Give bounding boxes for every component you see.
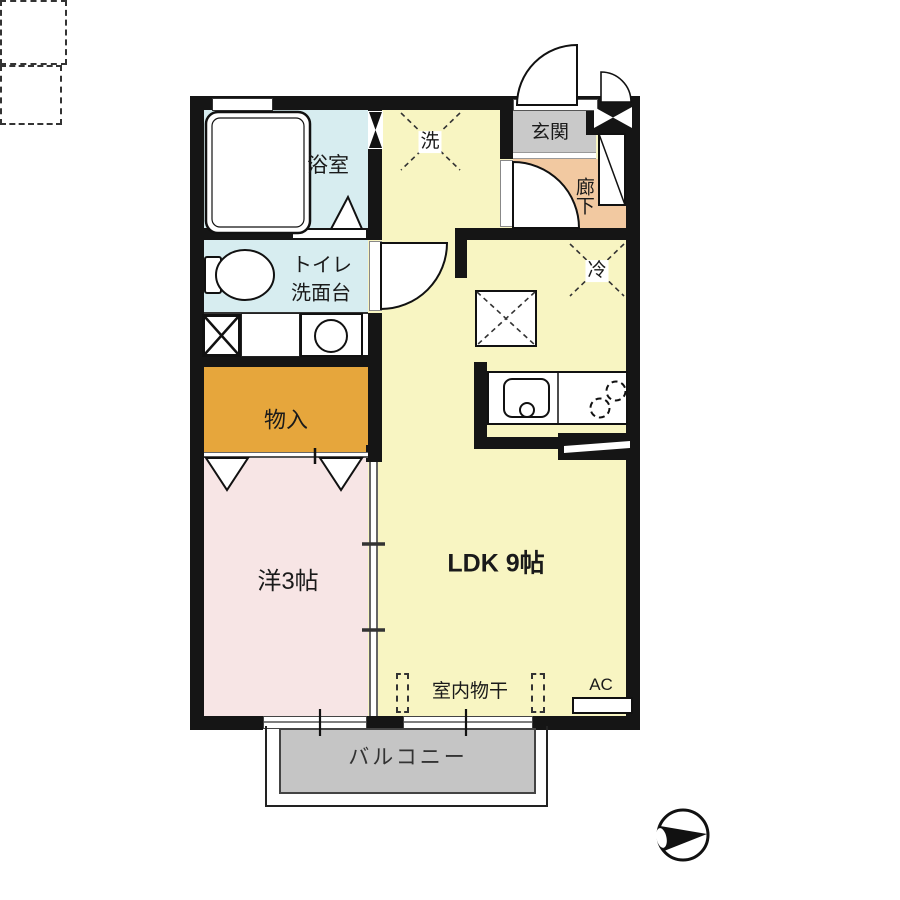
kitchen-counter-edge-v [474,362,487,449]
label-washer: 洗 [418,131,441,153]
wall-hall-ldk [455,228,640,240]
kitchen-cabinet [475,290,537,347]
shoe-cabinet [598,133,626,206]
refrigerator-space [0,65,62,125]
washstand-counter [241,313,300,357]
wall-stub-storage [366,445,382,462]
label-ac: AC [589,675,613,695]
wall-right [626,96,640,730]
washroom-door-leaf [369,241,382,311]
wall-wash-ldk [368,313,382,462]
entrance-step [513,152,596,159]
kitchen-vent-box [558,433,637,460]
wall-hall-stub [455,240,467,278]
label-ldk: LDK 9帖 [447,550,544,579]
bathroom-door-opening [293,230,366,238]
drying-pole-mark-right [531,673,545,713]
label-refrigerator: 冷 [585,260,608,282]
label-balcony: バルコニー [348,746,468,770]
label-entrance: 玄関 [531,122,569,144]
wall-window-marker [368,111,383,149]
label-hallway: 廊下 [572,177,594,215]
label-storage: 物入 [264,407,308,432]
north-arrow-icon [655,810,708,860]
ac-unit [572,697,633,714]
wall-left [190,96,204,730]
kitchen-counter-edge-h [474,437,558,449]
hallway-door-leaf [500,160,513,227]
label-western-room: 洋3帖 [257,568,318,596]
label-washstand: 洗面台 [291,283,351,306]
washbasin [300,313,363,357]
washer-pan-box [202,314,241,357]
kitchen-counter [487,371,628,425]
label-indoor-drying: 室内物干 [432,681,508,703]
storage-door-track [204,452,368,458]
label-bathroom: 浴室 [307,154,349,178]
wall-entrance-left [500,110,513,159]
label-toilet: トイレ [292,255,352,278]
window-bathroom-top [212,98,273,111]
entrance-door-opening [513,99,598,111]
washer-space [0,0,67,65]
drying-pole-mark-left [396,673,409,713]
floor-plan: 浴室 トイレ 洗面台 物入 洋3帖 LDK 9帖 玄関 廊下 洗 冷 室内物干 … [0,0,900,900]
sliding-partition-west-ldk [369,462,378,716]
wall-bottom-right [533,716,640,730]
